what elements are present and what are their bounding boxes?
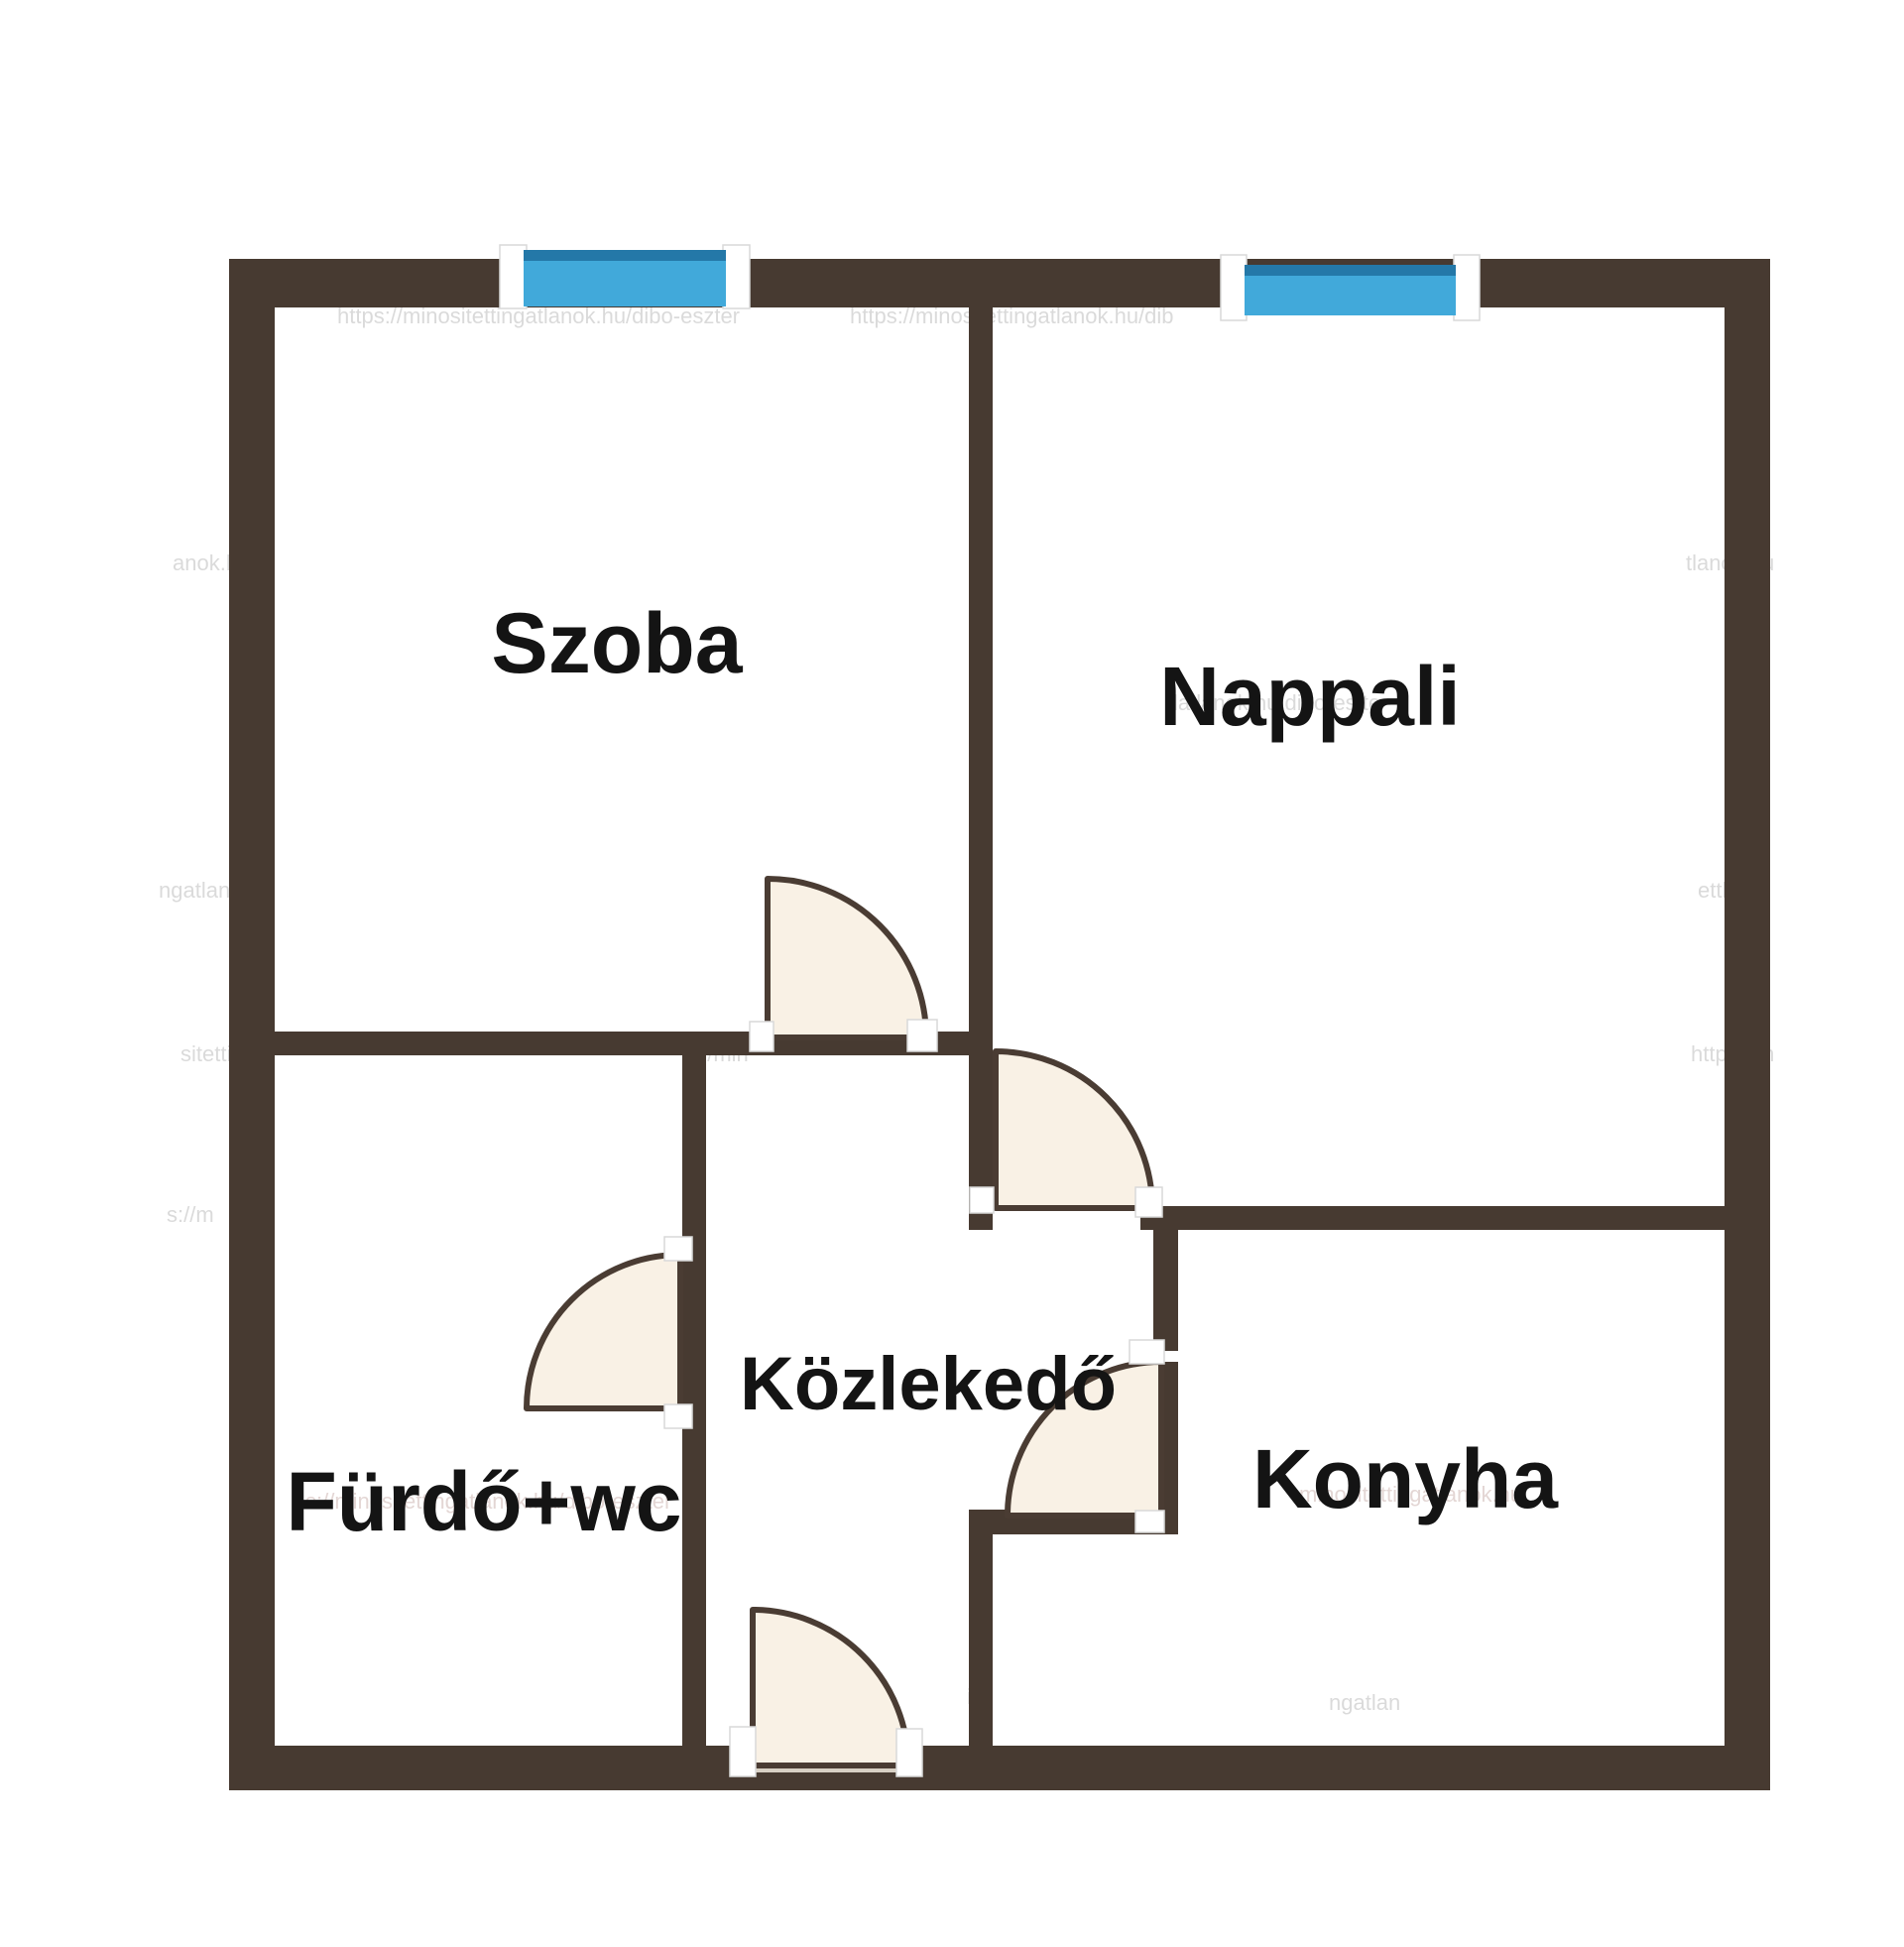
window-frame-cap (723, 245, 750, 308)
window-szoba (500, 245, 750, 308)
room-label-szoba: Szoba (491, 596, 743, 691)
floor-plan-page: https://minositettingatlanok.hu/dibo-esz… (0, 0, 1904, 1947)
door-frame-bracket (970, 1187, 994, 1213)
room-label-kozlekedo: Közlekedő (740, 1342, 1117, 1426)
room-label-nappali: Nappali (1159, 650, 1460, 743)
watermark-text: ngatlan (1329, 1690, 1400, 1715)
door-frame-bracket (664, 1404, 692, 1428)
door-frame-bracket (896, 1729, 922, 1776)
room-label-furdo: Fürdő+wc (286, 1455, 681, 1548)
window-frame-cap (1454, 255, 1480, 320)
door-frame-bracket (750, 1022, 773, 1051)
window-frame-cap (500, 245, 527, 308)
wall-outer-right (1725, 259, 1770, 1790)
wall-outer-left (229, 259, 275, 1790)
door-frame-bracket (1130, 1340, 1164, 1364)
door-frame-bracket (664, 1237, 692, 1261)
window-glass-edge (1245, 265, 1456, 276)
room-label-konyha: Konyha (1252, 1432, 1559, 1525)
wall-furdo-kozlekedo (682, 1055, 706, 1750)
door-frame-bracket (1135, 1187, 1162, 1217)
wall-nappali-left (969, 305, 993, 1230)
wall-konyha-left-upper (1153, 1230, 1178, 1351)
wall-outer-top (229, 259, 1770, 307)
floor-plan-canvas: https://minositettingatlanok.hu/dibo-esz… (0, 0, 1904, 1947)
wall-outer-bottom (229, 1746, 1770, 1790)
wall-kozlekedo-lower-right (969, 1534, 993, 1746)
window-glass-edge (524, 250, 726, 261)
door-frame-bracket (1135, 1511, 1164, 1532)
door-frame-bracket (907, 1020, 937, 1051)
door-frame-bracket (730, 1727, 756, 1776)
window-frame-cap (1221, 255, 1247, 320)
wall-nappali-bottom (1140, 1206, 1725, 1230)
watermark-text: s://m (167, 1202, 214, 1227)
